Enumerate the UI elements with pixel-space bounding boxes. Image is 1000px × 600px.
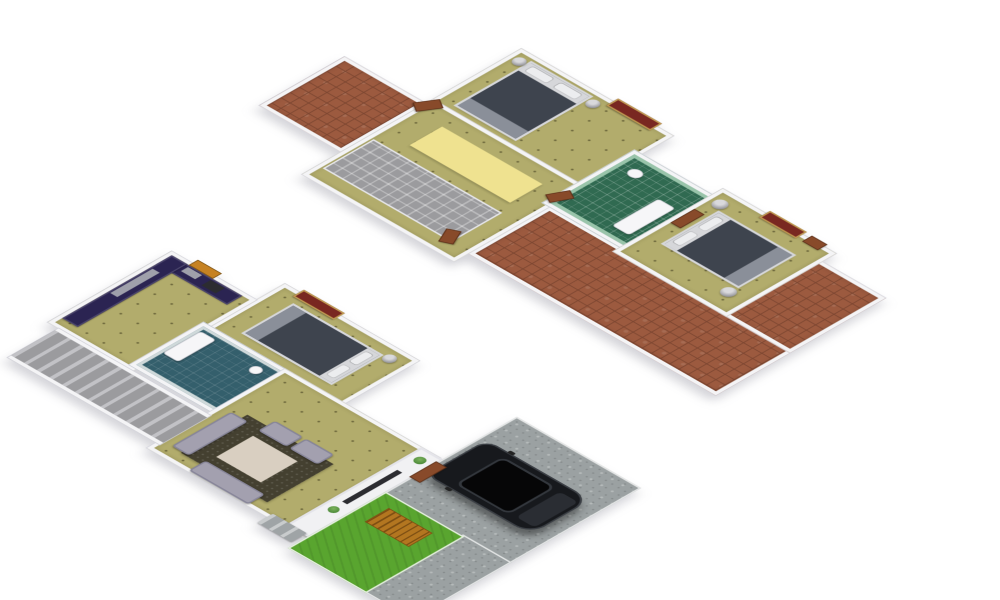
door-leaf bbox=[413, 99, 444, 112]
plant bbox=[325, 505, 342, 515]
round-pouf bbox=[708, 197, 732, 211]
wall-art-maroon bbox=[606, 99, 662, 131]
door-leaf bbox=[802, 236, 827, 251]
toilet bbox=[624, 167, 647, 180]
wall-art-maroon bbox=[759, 211, 807, 239]
nightstand-lamp bbox=[582, 98, 603, 110]
render-canvas bbox=[0, 0, 1000, 600]
orange-doormat bbox=[365, 508, 433, 547]
washbasin bbox=[246, 364, 266, 375]
round-pouf bbox=[716, 285, 740, 299]
plant bbox=[411, 455, 429, 466]
nightstand-lamp bbox=[379, 353, 400, 365]
bed-blanket-fold bbox=[724, 247, 792, 286]
bed-blanket-fold bbox=[245, 306, 306, 341]
